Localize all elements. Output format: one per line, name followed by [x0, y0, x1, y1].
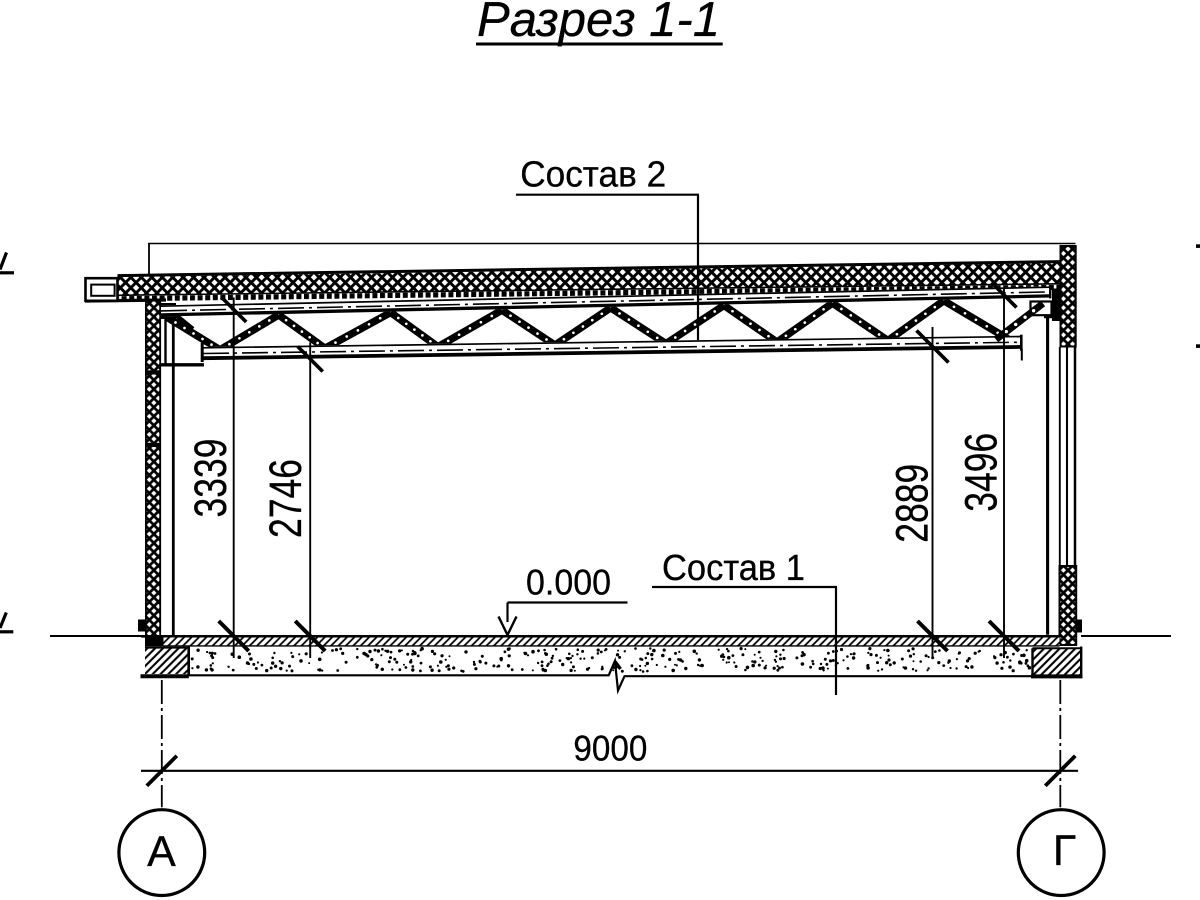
- svg-text:3496: 3496: [956, 433, 1007, 512]
- svg-text:2746: 2746: [260, 459, 311, 538]
- svg-text:Состав 1: Состав 1: [662, 547, 805, 588]
- svg-text:3339: 3339: [185, 439, 236, 518]
- svg-text:0.000: 0.000: [526, 562, 611, 603]
- svg-text:Состав 2: Состав 2: [520, 154, 666, 195]
- svg-text:Г: Г: [1053, 827, 1076, 875]
- svg-text:2889: 2889: [887, 464, 938, 543]
- svg-text:А: А: [147, 828, 176, 876]
- svg-text:Разрез 1-1: Разрез 1-1: [477, 0, 720, 47]
- svg-text:9000: 9000: [573, 728, 647, 769]
